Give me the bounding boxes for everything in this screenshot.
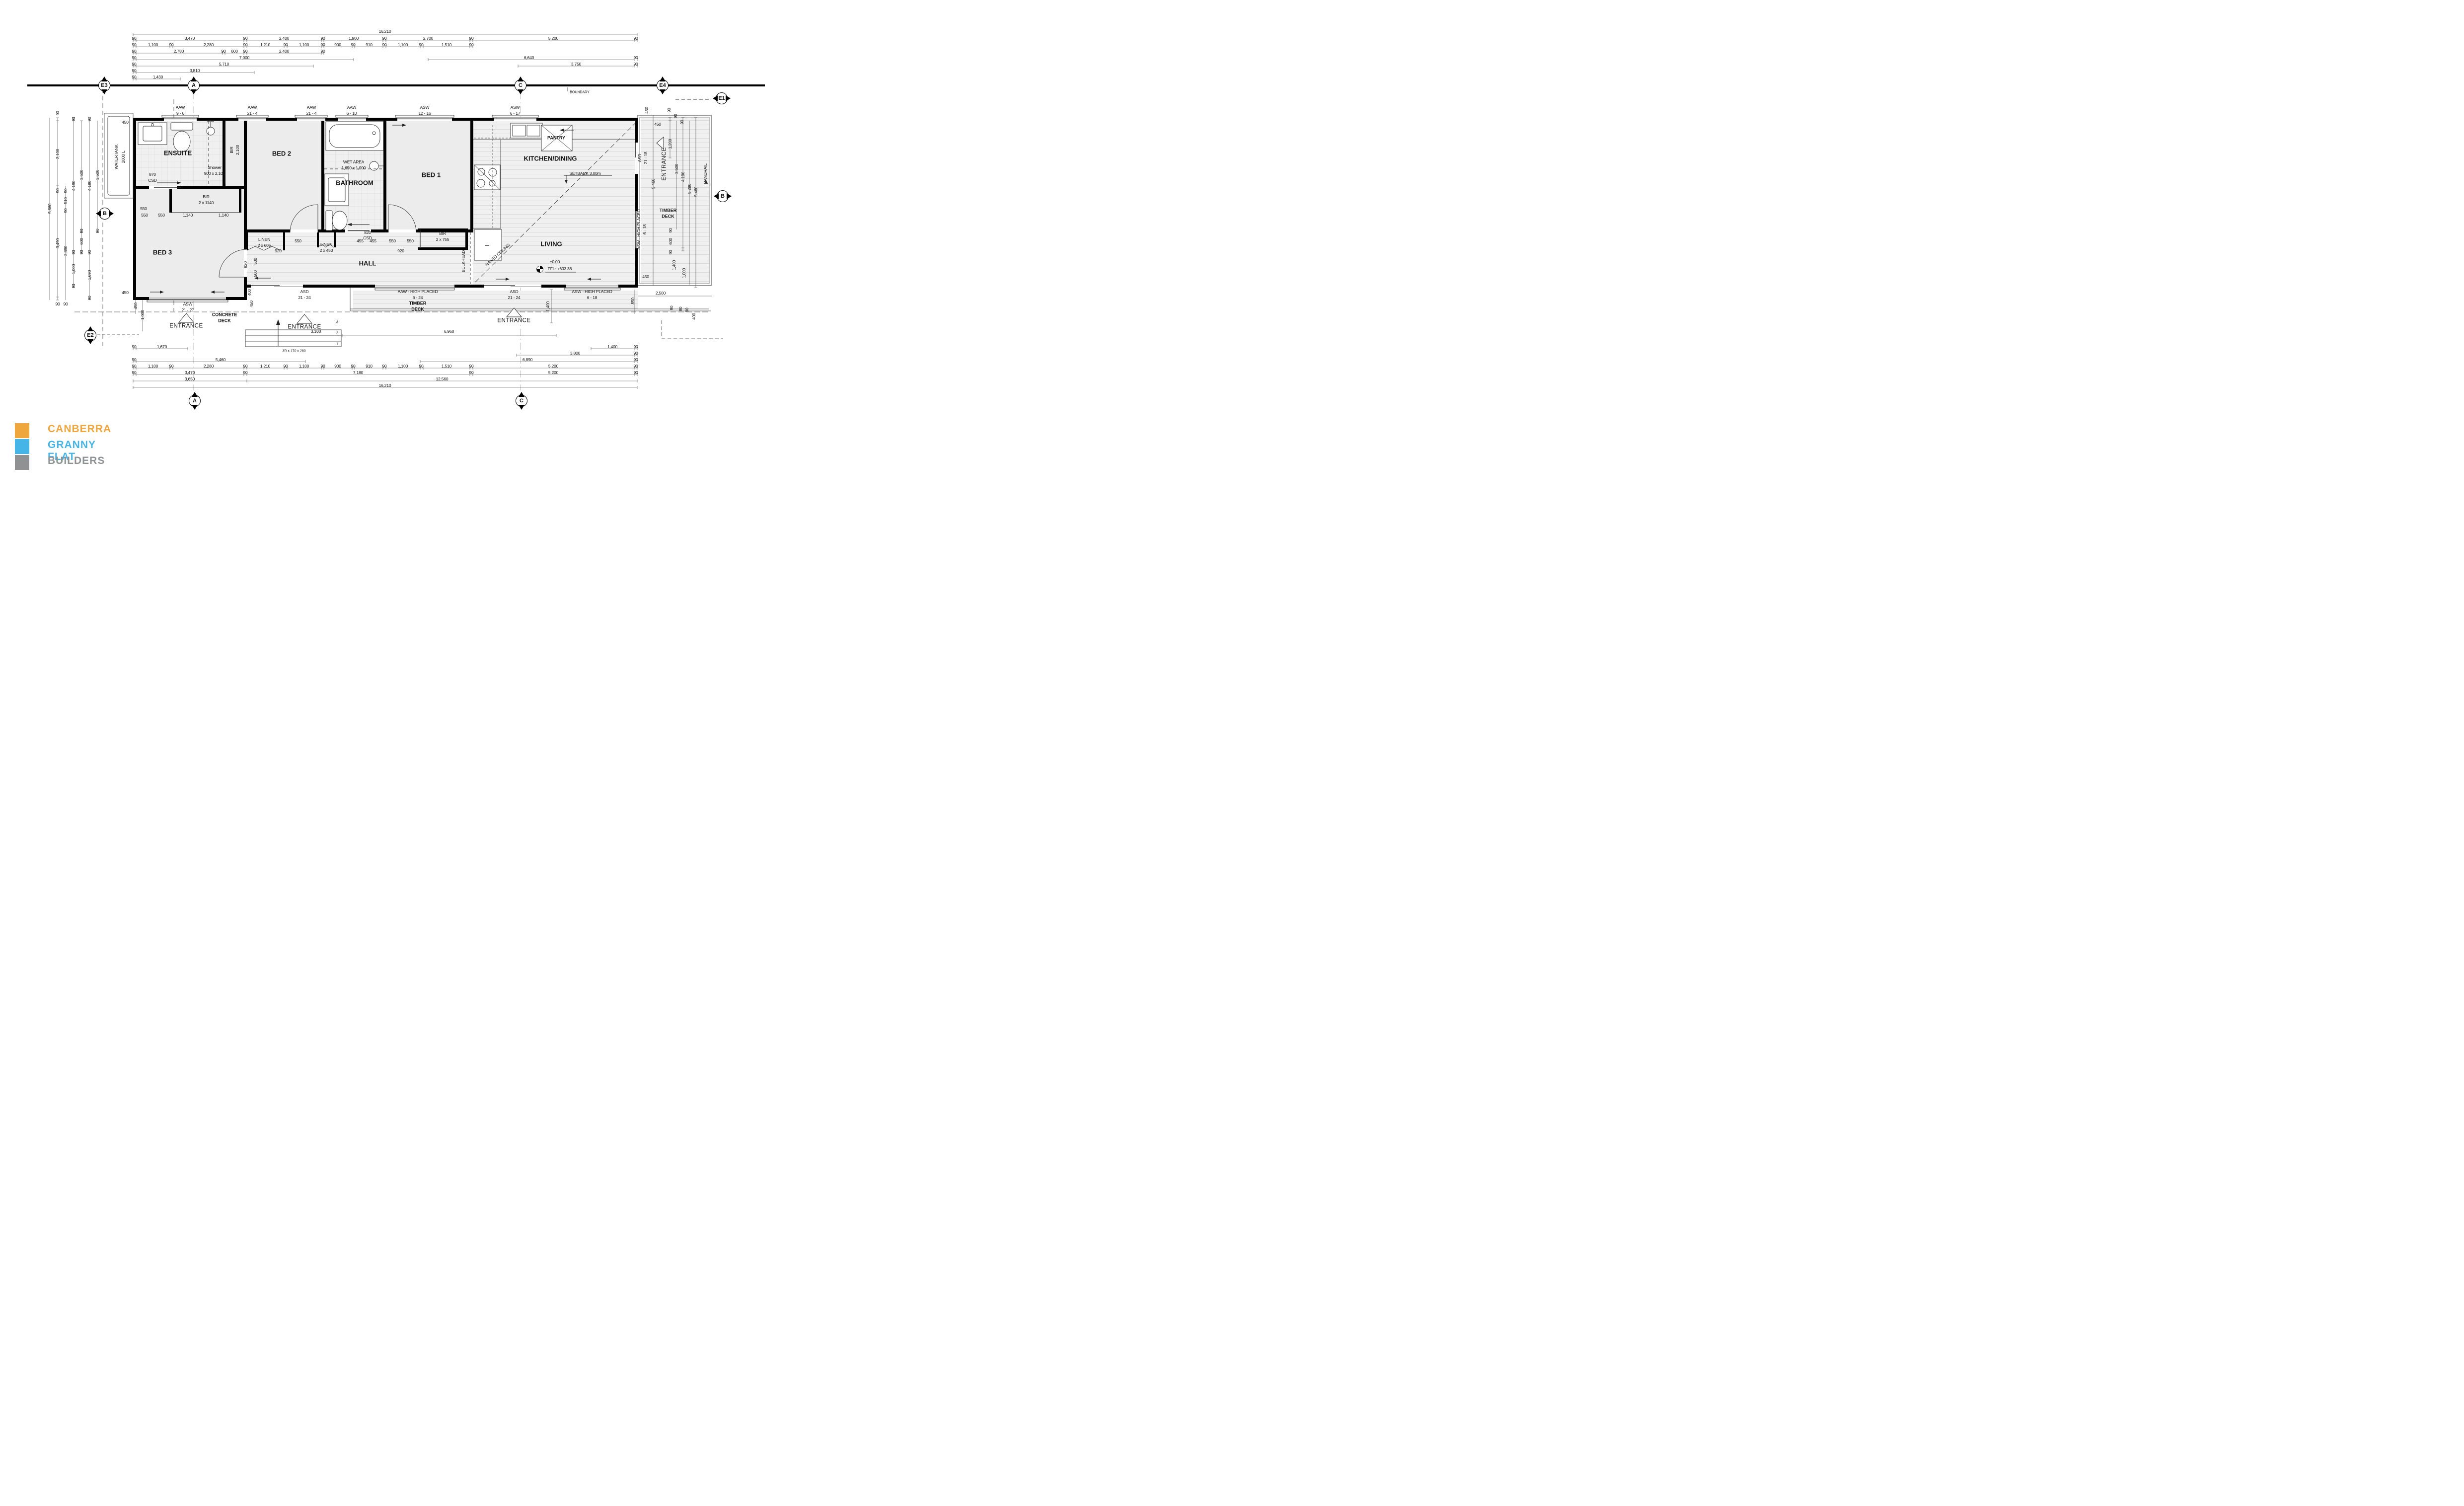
- label-450: 450: [654, 122, 661, 127]
- label-550: 550: [389, 239, 396, 243]
- label-linen: LINEN: [320, 242, 332, 247]
- label-870: 870: [149, 172, 156, 177]
- label-asw: ASW: [183, 302, 193, 306]
- label-5-460: 5,460: [651, 179, 656, 189]
- label-2-100: 2,100: [235, 145, 240, 155]
- grid-bubble-c: C: [515, 79, 526, 91]
- label-600: 600: [79, 238, 84, 245]
- label-5-280: 5,280: [687, 184, 692, 194]
- label-500: 500: [253, 270, 258, 277]
- label-90: 90: [320, 43, 325, 47]
- label-concrete: CONCRETE: [212, 313, 237, 317]
- label-bir: BIR: [439, 231, 446, 236]
- label-aaw: AAW: [307, 105, 316, 110]
- label-90: 90: [469, 36, 473, 41]
- label-90: 90: [221, 49, 225, 54]
- label-90: 90: [132, 371, 136, 375]
- label-bed-2: BED 2: [272, 151, 291, 157]
- label-90: 90: [633, 56, 638, 60]
- label-6-10: 6 - 10: [347, 111, 357, 116]
- label-455: 455: [357, 239, 364, 243]
- label-deck: DECK: [662, 215, 674, 219]
- grid-bubble-c: C: [516, 395, 527, 407]
- label-6-960: 6,960: [444, 329, 454, 334]
- label-ffl-603-36: FFL: +603.36: [548, 267, 572, 271]
- label-ensuite: ENSUITE: [164, 150, 192, 156]
- label-1-900: 1,900: [349, 36, 359, 41]
- label-90: 90: [320, 36, 325, 41]
- label-5-460: 5,460: [216, 358, 225, 362]
- label-asw: ASW: [511, 105, 520, 110]
- label-90: 90: [351, 364, 355, 369]
- label-1-100: 1,100: [148, 43, 158, 47]
- label-2-780: 2,780: [174, 49, 184, 54]
- label-500: 500: [253, 258, 258, 265]
- label-400: 400: [247, 289, 252, 296]
- label-90: 90: [633, 371, 638, 375]
- label-90: 90: [87, 117, 92, 121]
- floor-plan-sheet: CANBERRA GRANNY FLAT BUILDERS 16,210903,…: [0, 0, 779, 476]
- label-21-4: 21 - 4: [306, 111, 317, 116]
- grid-bubble-e2: E2: [84, 329, 96, 341]
- label-asw: ASW: [420, 105, 430, 110]
- label-90: 90: [79, 250, 84, 254]
- label-1-000: 1,000: [141, 310, 145, 320]
- label-90: 90: [667, 108, 672, 112]
- label-90: 90: [283, 364, 288, 369]
- label-7-000: 7,000: [239, 56, 249, 60]
- label-bulkhead: BULKHEAD: [461, 250, 466, 272]
- label-1-400: 1,400: [546, 301, 550, 311]
- label-90: 90: [132, 364, 136, 369]
- label-linen: LINEN: [258, 237, 270, 242]
- label-90: 90: [633, 62, 638, 67]
- grid-bubble-b: B: [717, 190, 729, 202]
- label-bir: BIR: [203, 195, 210, 199]
- label-400: 400: [692, 313, 696, 320]
- label-90: 90: [132, 62, 136, 67]
- label-21-24: 21 - 24: [508, 296, 520, 300]
- label-handrail: HANDRAIL: [703, 163, 708, 184]
- label-455: 455: [370, 239, 376, 243]
- label-2-890: 2,890: [64, 246, 68, 256]
- label-csd: CSD: [148, 178, 156, 183]
- label-850: 850: [631, 298, 635, 304]
- label-90: 90: [132, 49, 136, 54]
- label-entrance: ENTRANCE: [497, 318, 530, 324]
- label-3: 3: [336, 321, 338, 324]
- label-90: 90: [382, 43, 386, 47]
- label-12-16: 12 - 16: [418, 111, 431, 116]
- label-living: LIVING: [540, 241, 562, 247]
- label-21-24: 21 - 24: [298, 296, 310, 300]
- label-shower: Shower: [208, 165, 222, 170]
- label-510: 510: [64, 197, 68, 204]
- label-90: 90: [132, 69, 136, 73]
- label-0-00: ±0.00: [550, 260, 560, 264]
- grid-bubble-e3: E3: [98, 79, 110, 91]
- label-aaw: AAW: [347, 105, 356, 110]
- label-hall: HALL: [359, 260, 376, 267]
- label-1-510: 1,510: [442, 43, 451, 47]
- label-5-460: 5,460: [694, 187, 698, 197]
- label-2-100: 2,100: [56, 149, 60, 159]
- label-90: 90: [56, 188, 60, 193]
- label-5-200: 5,200: [548, 36, 558, 41]
- label-deck: DECK: [218, 319, 231, 323]
- label-90: 90: [633, 364, 638, 369]
- label-2-400: 2,400: [279, 49, 289, 54]
- label-3-500: 3,500: [95, 170, 100, 180]
- label-90: 90: [673, 114, 678, 118]
- grid-bubble-e4: E4: [657, 79, 669, 91]
- label-450: 450: [122, 291, 129, 295]
- label-4-190: 4,190: [681, 172, 685, 182]
- label-90: 90: [283, 43, 288, 47]
- label-2-400: 2,400: [279, 36, 289, 41]
- label-aaw: AAW: [248, 105, 257, 110]
- label-550: 550: [295, 239, 301, 243]
- label-90: 90: [72, 117, 76, 121]
- label-entrance: ENTRANCE: [662, 147, 668, 180]
- label-watertank: WATERTANK: [114, 145, 119, 169]
- label-2-x-450: 2 x 450: [320, 248, 333, 253]
- label-3-470: 3,470: [185, 36, 195, 41]
- label-3-490: 3,490: [56, 238, 60, 248]
- logo-square-orange: [15, 423, 29, 438]
- label-920: 920: [243, 261, 248, 268]
- logo-square-gray: [15, 455, 29, 470]
- label-90: 90: [382, 36, 386, 41]
- grid-bubble-e1: E1: [716, 92, 728, 104]
- label-90: 90: [678, 306, 683, 311]
- label-450: 450: [134, 302, 138, 309]
- grid-bubble-b: B: [99, 208, 111, 220]
- label-wet-area: WET AREA: [343, 160, 364, 164]
- label-90: 90: [243, 36, 247, 41]
- label-bir: BIR: [229, 147, 234, 153]
- label-6-18: 6 - 18: [643, 225, 647, 235]
- label-920: 920: [397, 249, 404, 253]
- label-900: 900: [334, 364, 341, 369]
- label-timber: TIMBER: [409, 301, 427, 306]
- label-3-810: 3,810: [190, 69, 200, 73]
- label-f: F: [485, 242, 491, 246]
- logo-square-blue: [15, 439, 29, 454]
- label-1-430: 1,430: [153, 75, 163, 79]
- label-90: 90: [633, 36, 638, 41]
- label-450: 450: [249, 301, 254, 307]
- label-90: 90: [132, 36, 136, 41]
- label-2000-l: 2000 L: [121, 151, 126, 163]
- label-600: 600: [669, 238, 673, 245]
- label-deck: DECK: [411, 307, 424, 312]
- label-90: 90: [633, 351, 638, 356]
- label-450: 450: [642, 275, 649, 279]
- label-90: 90: [351, 43, 355, 47]
- label-2-280: 2,280: [204, 364, 214, 369]
- label-90: 90: [72, 284, 76, 288]
- label-3-100: 3,100: [311, 329, 321, 334]
- label-3-650: 3,650: [185, 377, 195, 381]
- label-90: 90: [87, 296, 92, 300]
- label-90: 90: [87, 250, 92, 254]
- label-90: 90: [633, 358, 638, 362]
- label-90: 90: [243, 43, 247, 47]
- label-90: 90: [685, 307, 689, 312]
- label-2-x-755: 2 x 755: [436, 237, 449, 242]
- label-90: 90: [243, 371, 247, 375]
- label-1-140: 1,140: [183, 213, 193, 218]
- label-1-210: 1,210: [260, 43, 270, 47]
- label-90: 90: [680, 120, 684, 124]
- label-asw-high-placed: ASW - HIGH PLACED: [637, 209, 641, 249]
- label-1-650-x-1-900: 1,650 x 1,900: [342, 166, 366, 170]
- label-450: 450: [122, 120, 129, 125]
- label-90: 90: [469, 364, 473, 369]
- label-21-18: 21 - 18: [644, 151, 648, 164]
- label-9-6: 9 - 6: [176, 111, 184, 116]
- label-bed-1: BED 1: [422, 172, 441, 178]
- label-90: 90: [95, 228, 100, 233]
- label-3-500: 3,500: [79, 170, 84, 180]
- label-90: 90: [132, 345, 136, 349]
- label-1-100: 1,100: [148, 364, 158, 369]
- label-1-000: 1,000: [72, 264, 76, 274]
- logo-text-line1: CANBERRA: [48, 423, 111, 435]
- label-1-100: 1,100: [398, 364, 408, 369]
- label-90: 90: [132, 56, 136, 60]
- label-90: 90: [72, 250, 76, 254]
- grid-bubble-a: A: [189, 395, 201, 407]
- label-550: 550: [407, 239, 414, 243]
- label-550: 550: [158, 213, 165, 218]
- label-3-750: 3,750: [571, 62, 581, 67]
- label-90: 90: [469, 43, 473, 47]
- label-asd: ASD: [638, 154, 642, 162]
- label-2-280: 2,280: [204, 43, 214, 47]
- label-6-17: 6 - 17: [510, 111, 521, 116]
- label-900-x-2-100: 900 x 2,100: [204, 171, 225, 176]
- label-asd: ASD: [510, 290, 519, 294]
- label-5-860: 5,860: [48, 204, 52, 214]
- label-90: 90: [670, 305, 674, 310]
- label-1-670: 1,670: [157, 345, 167, 349]
- label-820: 820: [364, 230, 371, 235]
- label-1-510: 1,510: [442, 364, 451, 369]
- label-asd: ASD: [300, 290, 309, 294]
- label-4-190: 4,190: [72, 181, 76, 191]
- label-90: 90: [132, 358, 136, 362]
- label-1-100: 1,100: [299, 43, 309, 47]
- label-90: 90: [320, 49, 325, 54]
- label-3-500: 3,500: [674, 164, 679, 174]
- label-90: 90: [669, 250, 673, 254]
- label-4-190: 4,190: [87, 181, 92, 191]
- label-90: 90: [382, 364, 386, 369]
- label-16-210: 16,210: [379, 29, 391, 34]
- label-aaw: AAW: [176, 105, 185, 110]
- label-16-210: 16,210: [379, 383, 391, 388]
- label-6-890: 6,890: [523, 358, 532, 362]
- label-1-000: 1,000: [682, 268, 686, 278]
- label-1-210: 1,210: [260, 364, 270, 369]
- label-1-690: 1,690: [87, 270, 92, 280]
- label-90: 90: [56, 111, 60, 115]
- label-90: 90: [419, 364, 423, 369]
- label-setback-3-00m: SETBACK 3.00m: [569, 171, 600, 176]
- label-2: 2: [336, 332, 338, 335]
- label-12-560: 12,560: [436, 377, 448, 381]
- label-2-700: 2,700: [423, 36, 433, 41]
- label-1-100: 1,100: [299, 364, 309, 369]
- label-3-470: 3,470: [185, 371, 195, 375]
- label-3-800: 3,800: [570, 351, 580, 356]
- label-2-x-1140: 2 x 1140: [199, 201, 214, 205]
- label-90: 90: [320, 364, 325, 369]
- label-90: 90: [243, 49, 247, 54]
- label-90: 90: [469, 371, 473, 375]
- label-910: 910: [366, 364, 373, 369]
- label-5-200: 5,200: [548, 371, 558, 375]
- label-90: 90: [169, 43, 173, 47]
- label-6-640: 6,640: [524, 56, 534, 60]
- label-90: 90: [55, 302, 60, 306]
- label-90: 90: [669, 228, 673, 232]
- label-920: 920: [275, 249, 282, 253]
- grid-bubble-a: A: [188, 79, 200, 91]
- label-asw-high-placed: ASW - HIGH PLACED: [572, 290, 612, 294]
- label-90: 90: [63, 302, 68, 306]
- label-90: 90: [64, 188, 68, 193]
- label-1: 1: [336, 343, 338, 346]
- label-90: 90: [79, 228, 84, 233]
- label-450: 450: [645, 107, 649, 114]
- label-1-400: 1,400: [607, 345, 617, 349]
- label-600: 600: [231, 49, 238, 54]
- label-21-27: 21 - 27: [181, 308, 194, 312]
- label-90: 90: [633, 345, 638, 349]
- label-1-100: 1,100: [398, 43, 408, 47]
- label-boundary: BOUNDARY: [570, 91, 590, 94]
- label-6-18: 6 - 18: [587, 296, 597, 300]
- label-1-200: 1,200: [668, 139, 672, 149]
- label-pantry: PANTRY: [547, 136, 565, 141]
- label-550: 550: [140, 207, 147, 211]
- label-aaw-high-placed: AAW - HIGH PLACED: [398, 290, 438, 294]
- label-5-200: 5,200: [548, 364, 558, 369]
- label-550: 550: [141, 213, 148, 218]
- label-90: 90: [169, 364, 173, 369]
- label-910: 910: [366, 43, 373, 47]
- label-90: 90: [243, 364, 247, 369]
- logo-text-line3: BUILDERS: [48, 455, 105, 467]
- label-1-400: 1,400: [672, 260, 676, 270]
- label-timber: TIMBER: [660, 209, 677, 213]
- label-bed-3: BED 3: [153, 249, 172, 256]
- label-90: 90: [64, 208, 68, 213]
- label-5-710: 5,710: [219, 62, 229, 67]
- label-90: 90: [419, 43, 423, 47]
- label-900: 900: [334, 43, 341, 47]
- label-3r-x-170-x-280: 3R x 170 x 280: [282, 350, 305, 353]
- label-entrance: ENTRANCE: [169, 323, 203, 329]
- label-90: 90: [132, 43, 136, 47]
- label-2-500: 2,500: [656, 291, 666, 296]
- label-kitchen-dining: KITCHEN/DINING: [524, 155, 577, 162]
- label-1-140: 1,140: [219, 213, 228, 218]
- label-2-x-605: 2 x 605: [258, 243, 271, 248]
- label-bathroom: BATHROOM: [336, 180, 373, 186]
- label-6-24: 6 - 24: [413, 296, 423, 300]
- label-90: 90: [132, 75, 136, 79]
- label-21-4: 21 - 4: [247, 111, 258, 116]
- label-7-180: 7,180: [353, 371, 363, 375]
